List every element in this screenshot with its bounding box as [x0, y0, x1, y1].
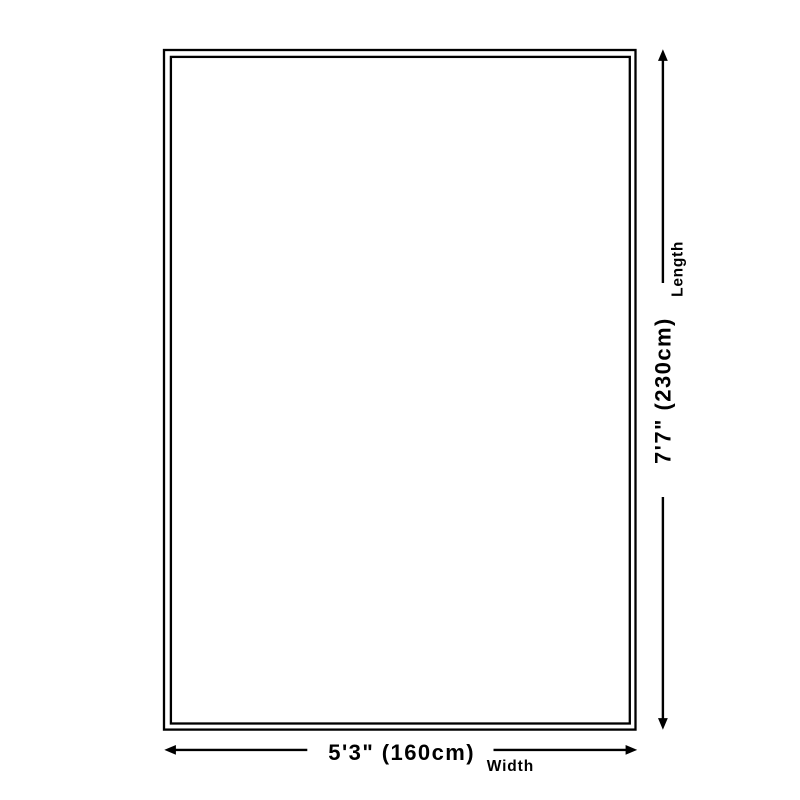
svg-text:7'7" (230cm): 7'7" (230cm) [650, 317, 675, 464]
svg-text:5'3" (160cm): 5'3" (160cm) [328, 740, 475, 765]
svg-text:Width: Width [487, 758, 534, 775]
svg-text:Length: Length [669, 241, 686, 297]
